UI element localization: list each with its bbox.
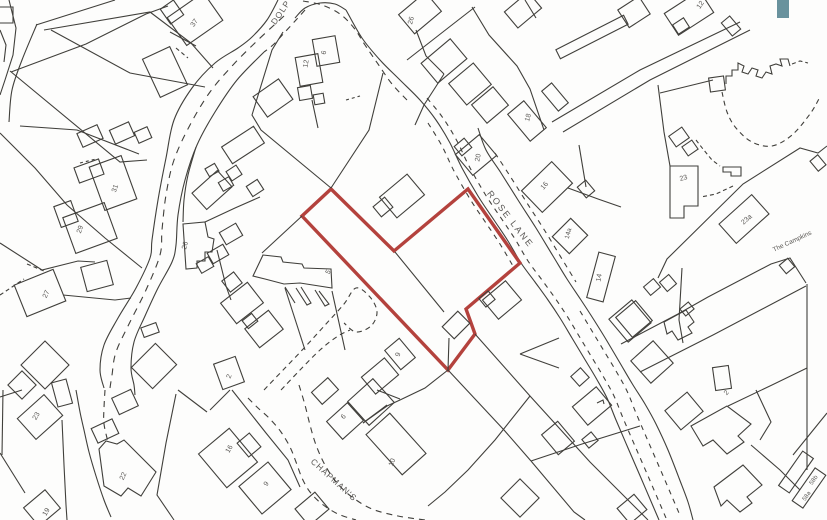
svg-text:12: 12 — [302, 59, 310, 68]
svg-text:14: 14 — [595, 273, 603, 282]
